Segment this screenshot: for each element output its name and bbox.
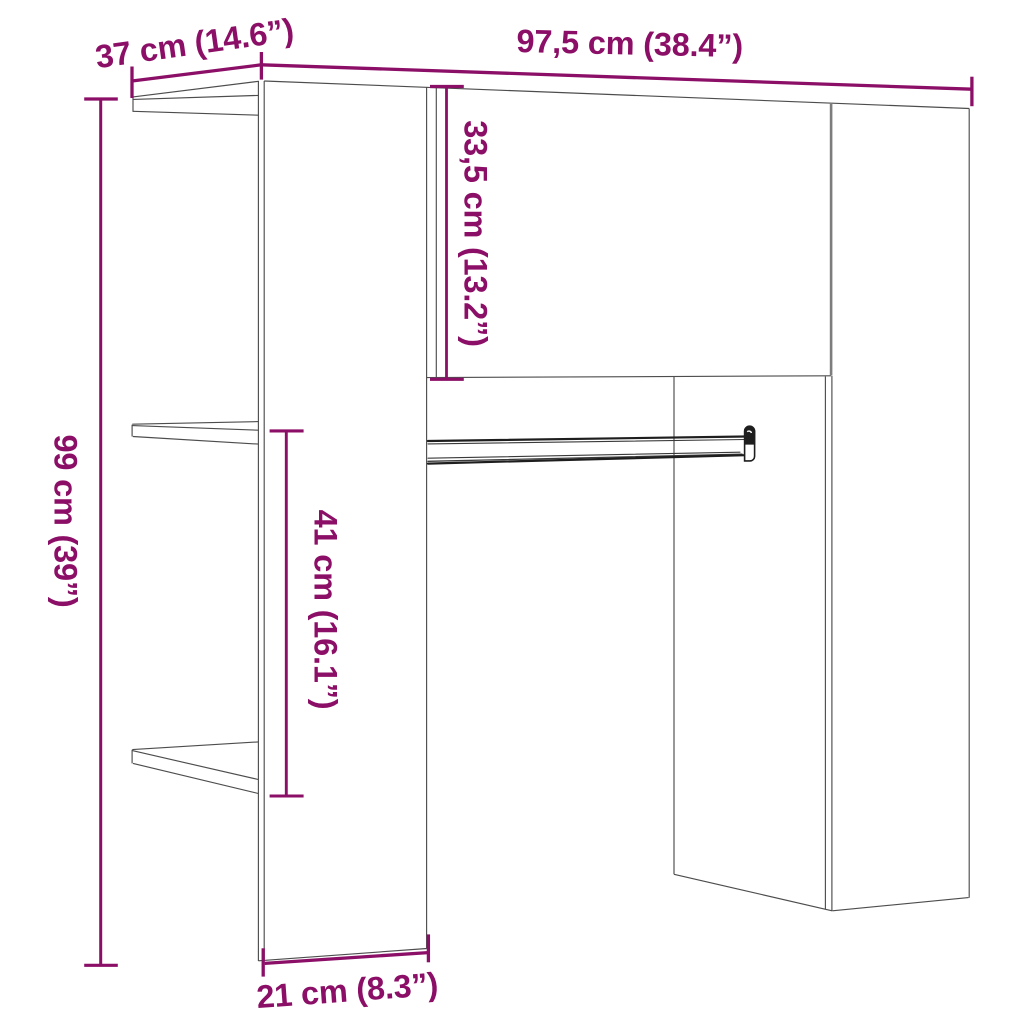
svg-text:97,5 cm (38.4”): 97,5 cm (38.4”) (516, 23, 743, 64)
svg-text:41 cm (16.1”): 41 cm (16.1”) (308, 510, 344, 710)
svg-text:99 cm (39”): 99 cm (39”) (48, 434, 84, 607)
svg-text:33,5 cm (13.2”): 33,5 cm (13.2”) (458, 120, 494, 346)
